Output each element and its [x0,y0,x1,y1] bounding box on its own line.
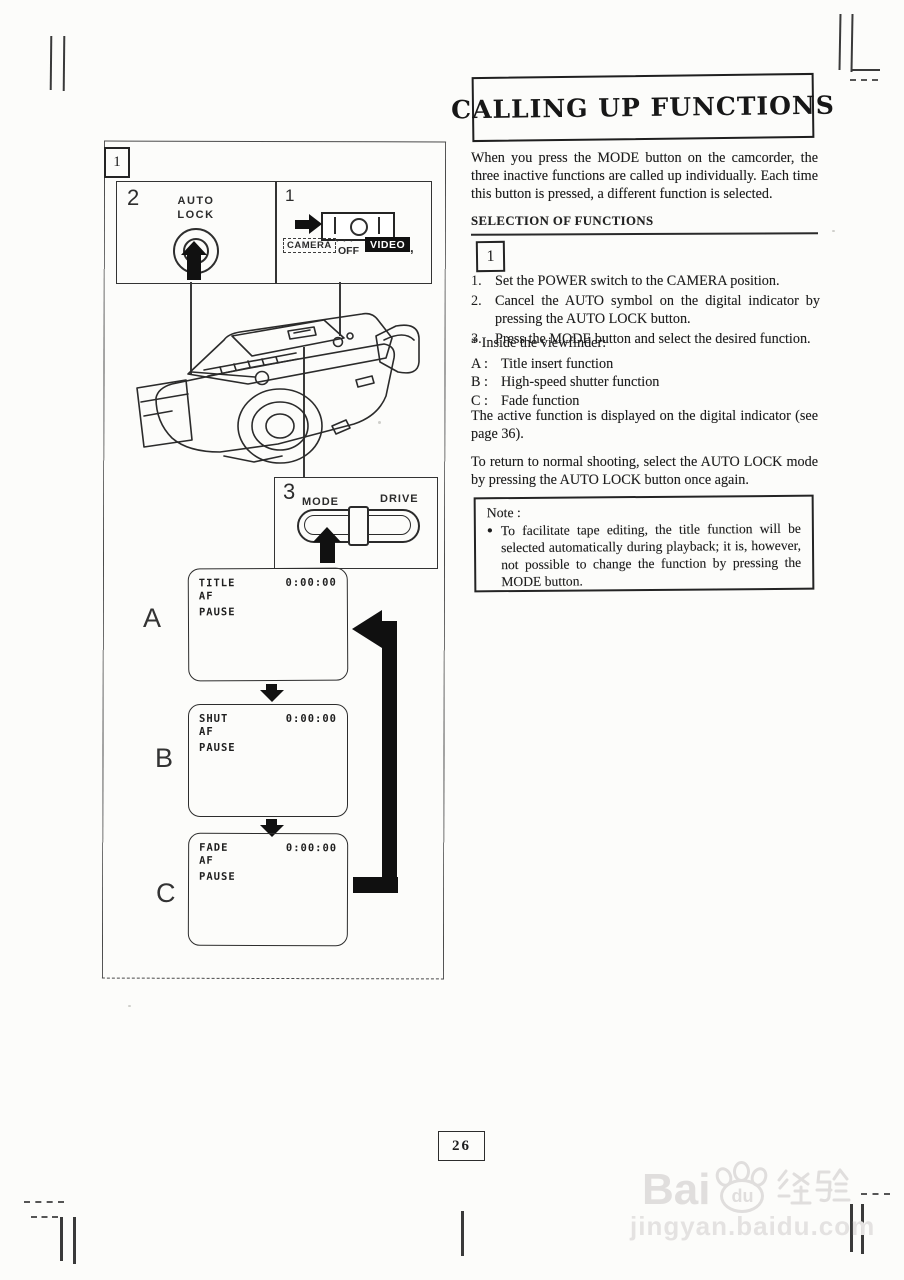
front-box [137,380,192,447]
corner-mark [839,14,842,70]
off-position-label: OFF [338,245,359,257]
function-name: SHUT [199,713,228,725]
corner-mark [852,69,880,71]
baidu-du-text: du [731,1186,753,1207]
tape-counter: 0:00:00 [286,842,337,854]
auto-lock-target [256,372,269,385]
note-item: ● To facilitate tape editing, the title … [487,520,802,591]
viewfinder-intro: * Inside the viewfinder: [471,335,820,352]
return-paragraph: To return to normal shooting, select the… [471,453,818,489]
lens-inner [266,414,294,438]
side-switch [356,376,374,387]
step-item: 1. Set the POWER switch to the CAMERA po… [471,273,820,291]
screen-label-a: A [143,603,161,634]
page-number: 26 [452,1138,471,1155]
section-step-box: 1 [476,241,505,272]
switch-tick [334,217,336,234]
viewfinder-item: A : Title insert function [471,355,820,373]
scan-speck [585,300,587,302]
corner-mark [850,79,878,81]
grip-texture [204,353,298,376]
function-name: TITLE [199,577,236,589]
lock-label: LOCK [173,209,219,223]
scan-speck [128,1005,131,1007]
rocker-center-knob [348,506,369,546]
intro-paragraph: When you press the MODE button on the ca… [471,149,818,204]
push-arrow-stem [295,220,309,229]
drive-label: DRIVE [380,493,419,505]
position-dots: • • • [336,236,354,245]
section-step-number: 1 [486,247,494,265]
step-text: Cancel the AUTO symbol on the digital in… [495,293,820,329]
viewfinder-screen-shutter: SHUT 0:00:00 AF PAUSE [188,704,348,817]
bullet-icon: ● [487,522,502,591]
corner-mark [24,1201,64,1203]
note-box: Note : ● To facilitate tape editing, the… [474,495,815,593]
figure-number: 1 [113,154,121,171]
lens-outer [238,389,322,463]
step-item: 2. Cancel the AUTO symbol on the digital… [471,293,820,329]
fold-mark [461,1211,464,1256]
corner-mark [50,36,53,90]
press-arrow-icon [313,527,341,542]
callout-number: 3 [283,479,295,505]
corner-mark [850,14,853,72]
paw-pad: du [720,1179,764,1213]
tape-counter: 0:00:00 [285,577,336,589]
af-indicator: AF [199,725,337,741]
jingyan-cn-icon [774,1165,852,1211]
switch-tick [378,217,380,234]
eyepiece [376,325,419,373]
scan-speck [378,421,381,424]
cycle-arrow-vertical-bar [382,621,397,893]
page-title: CALLING UP FUNCTIONS [451,91,835,125]
panel-divider [275,182,277,283]
af-indicator: AF [199,854,337,870]
page-title-box: CALLING UP FUNCTIONS [472,73,815,142]
af-indicator: AF [199,589,337,605]
corner-mark [73,1217,76,1264]
scan-speck [832,230,835,232]
section-rule [471,232,818,236]
viewfinder-item: B : High-speed shutter function [471,373,820,391]
watermark-url: jingyan.baidu.com [630,1211,875,1242]
next-arrow-icon [260,690,284,702]
corner-mark [31,1216,58,1218]
controls-panel: 2 AUTO LOCK 1 CAMERA • • • OFF VIDEO , [116,181,432,284]
press-arrow-stem [187,254,201,280]
pause-indicator: PAUSE [199,870,337,886]
video-position-label: VIDEO [365,237,410,252]
press-arrow-icon [181,241,207,255]
camcorder-illustration [128,296,428,481]
callout-number: 1 [285,186,294,206]
cycle-arrow-horizontal-bar [353,877,398,893]
camera-position-label: CAMERA [283,238,336,253]
corner-mark [63,36,66,91]
push-arrow-icon [309,214,322,234]
active-function-paragraph: The active function is displayed on the … [471,407,818,443]
comma-mark: , [410,240,414,255]
cycle-arrowhead-icon [352,610,382,648]
baidu-paw-icon: du [712,1159,768,1211]
corner-mark [60,1217,63,1261]
mode-label: MODE [302,496,339,508]
note-label: Note : [487,503,801,521]
screen-label-b: B [155,743,173,774]
eyepiece-detail [384,335,414,340]
auto-lock-label: AUTO LOCK [173,195,219,223]
base-line [224,456,282,462]
auto-label: AUTO [173,195,219,209]
viewfinder-screen-fade: FADE 0:00:00 AF PAUSE [188,833,348,947]
function-name: FADE [199,842,228,854]
screen-label-c: C [156,878,176,909]
manual-page: CALLING UP FUNCTIONS When you press the … [0,0,904,1280]
viewfinder-key: A : [471,355,501,373]
viewfinder-key: B : [471,373,501,391]
baidu-logo-text: Bai [642,1169,710,1211]
pause-indicator: PAUSE [199,741,337,757]
callout-number: 2 [127,185,139,211]
tape-counter: 0:00:00 [286,713,337,725]
viewfinder-text: Title insert function [501,355,613,373]
corner-mark [861,1193,890,1195]
mode-button-area [288,327,316,339]
step-number: 2. [471,293,495,329]
step-text: Set the POWER switch to the CAMERA posit… [495,273,820,291]
figure-number-box: 1 [104,147,130,178]
switch-knob-icon [350,218,368,236]
pause-indicator: PAUSE [199,604,337,620]
note-text: To facilitate tape editing, the title fu… [501,520,802,591]
front-box-detail [141,394,188,416]
section-heading: SELECTION OF FUNCTIONS [471,214,654,229]
viewfinder-screen-title: TITLE 0:00:00 AF PAUSE [188,568,349,682]
mode-drive-panel: 3 MODE DRIVE [274,477,438,569]
viewfinder-list: * Inside the viewfinder: A : Title inser… [471,335,820,410]
body-button [347,333,353,339]
baidu-watermark: Bai du [642,1159,852,1211]
press-arrow-stem [320,541,335,563]
step-number: 1. [471,273,495,291]
viewfinder-text: High-speed shutter function [501,373,659,391]
page-number-box: 26 [438,1131,485,1161]
